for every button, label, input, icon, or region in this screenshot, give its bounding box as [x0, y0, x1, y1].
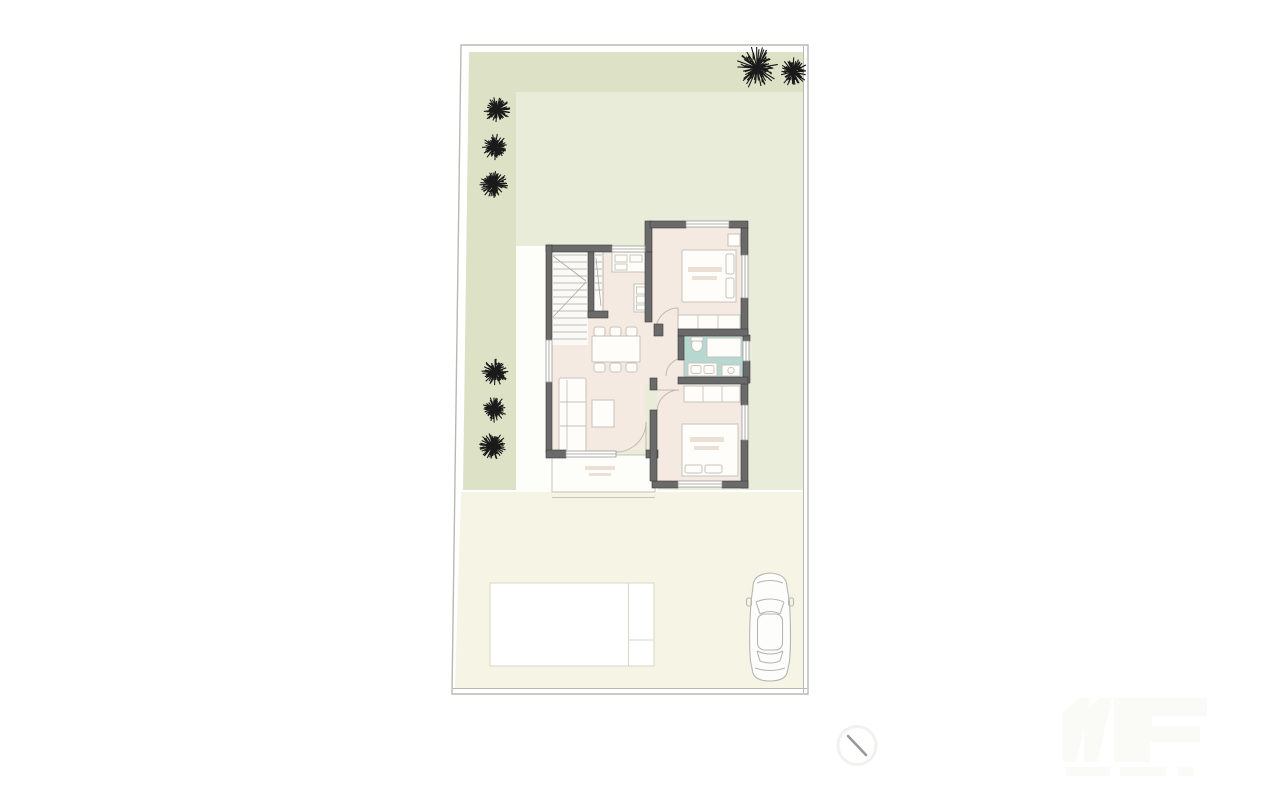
wall: [678, 377, 748, 384]
room-label-smudge: [585, 466, 615, 470]
toilet-cistern: [691, 337, 703, 341]
swimming-pool: [490, 583, 654, 666]
dining-table: [592, 336, 640, 362]
pool-basin: [490, 583, 654, 666]
wall: [546, 245, 612, 252]
wall: [546, 245, 552, 340]
room-label-smudge: [692, 276, 717, 280]
watermark-text-bar: [1066, 767, 1110, 776]
room-label-smudge: [688, 267, 722, 272]
vanity: [688, 363, 717, 376]
site-plan-drawing: [0, 0, 1280, 800]
wall: [678, 336, 684, 360]
wall: [650, 221, 686, 228]
car-icon: [747, 573, 794, 681]
nightstand: [728, 234, 740, 246]
tree-trunk-dot: [791, 70, 794, 73]
tree-trunk-dot: [491, 444, 494, 447]
wardrobe: [684, 386, 740, 402]
bidet: [722, 365, 740, 376]
wall: [652, 481, 678, 488]
terrace: [552, 455, 655, 498]
dining-set: [592, 327, 640, 372]
wall: [654, 324, 663, 336]
watermark-glyph: [1114, 698, 1207, 762]
wall: [678, 329, 748, 336]
wall: [650, 378, 657, 390]
chair: [610, 327, 621, 336]
pillow: [726, 254, 734, 274]
room-label-smudge: [694, 446, 719, 450]
wardrobe: [678, 315, 740, 329]
room-label-smudge: [690, 437, 724, 442]
wall: [729, 221, 748, 228]
wall: [588, 311, 608, 318]
room-label-smudge: [589, 473, 611, 476]
pillow: [726, 278, 734, 298]
pillow: [705, 465, 722, 473]
wall: [588, 252, 594, 317]
tree-trunk-dot: [492, 182, 495, 185]
annotation-diagonal-line: [848, 736, 866, 755]
tree-trunk-dot: [495, 108, 498, 111]
coffee-table: [592, 400, 614, 427]
tree-trunk-dot: [493, 145, 496, 148]
sofa: [559, 378, 586, 452]
chair: [610, 363, 621, 372]
chair: [594, 327, 605, 336]
wall: [741, 383, 748, 405]
shower: [707, 338, 741, 357]
house-floor-plan: [546, 221, 750, 498]
pillow: [685, 465, 702, 473]
tree-trunk-dot: [755, 66, 758, 69]
wall: [546, 450, 566, 458]
wall: [650, 410, 657, 481]
wall: [546, 382, 552, 452]
watermark: [1063, 698, 1207, 776]
annotation-mark: [838, 727, 876, 765]
chair: [594, 363, 605, 372]
site-plan-page: [0, 0, 1280, 800]
tree-trunk-dot: [492, 407, 495, 410]
tree-trunk-dot: [493, 370, 496, 373]
chair: [626, 363, 637, 372]
car-body: [750, 573, 791, 681]
watermark-text-bar: [1120, 767, 1166, 776]
wall: [741, 228, 748, 255]
sofa-body: [559, 378, 586, 452]
watermark-text-bar: [1178, 767, 1194, 776]
chair: [626, 327, 637, 336]
bedroom-2-furniture: [682, 386, 740, 476]
wall: [722, 481, 748, 488]
wall: [645, 252, 652, 322]
